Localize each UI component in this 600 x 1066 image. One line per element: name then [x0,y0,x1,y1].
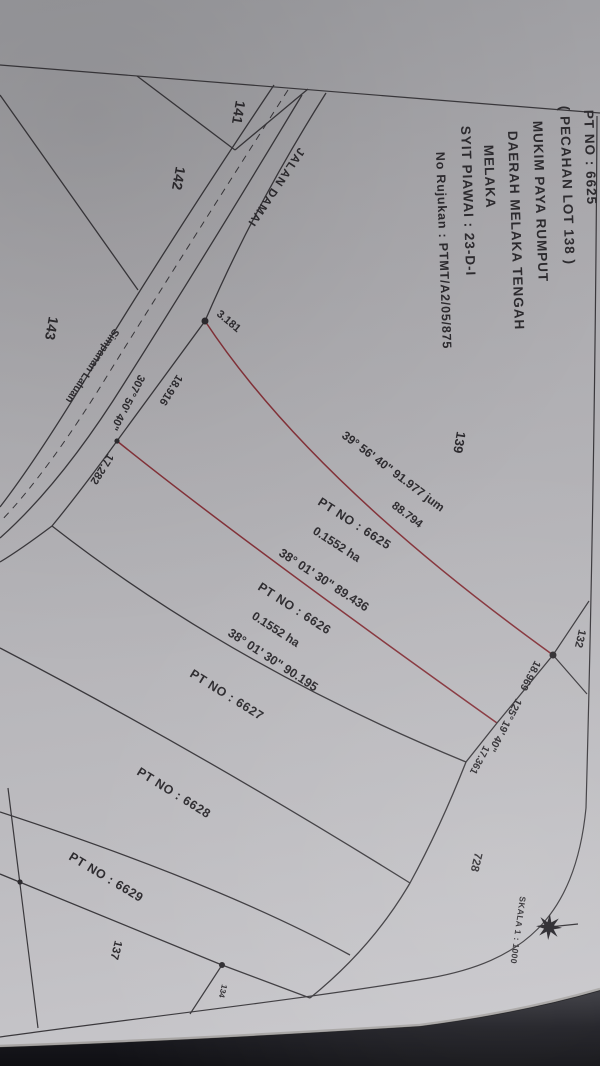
photo-shine [0,0,600,1066]
survey-plan-photo: PT NO : 6625 ( PECAHAN LOT 138 ) MUKIM P… [0,0,600,1066]
plan-canvas: PT NO : 6625 ( PECAHAN LOT 138 ) MUKIM P… [0,0,600,1066]
